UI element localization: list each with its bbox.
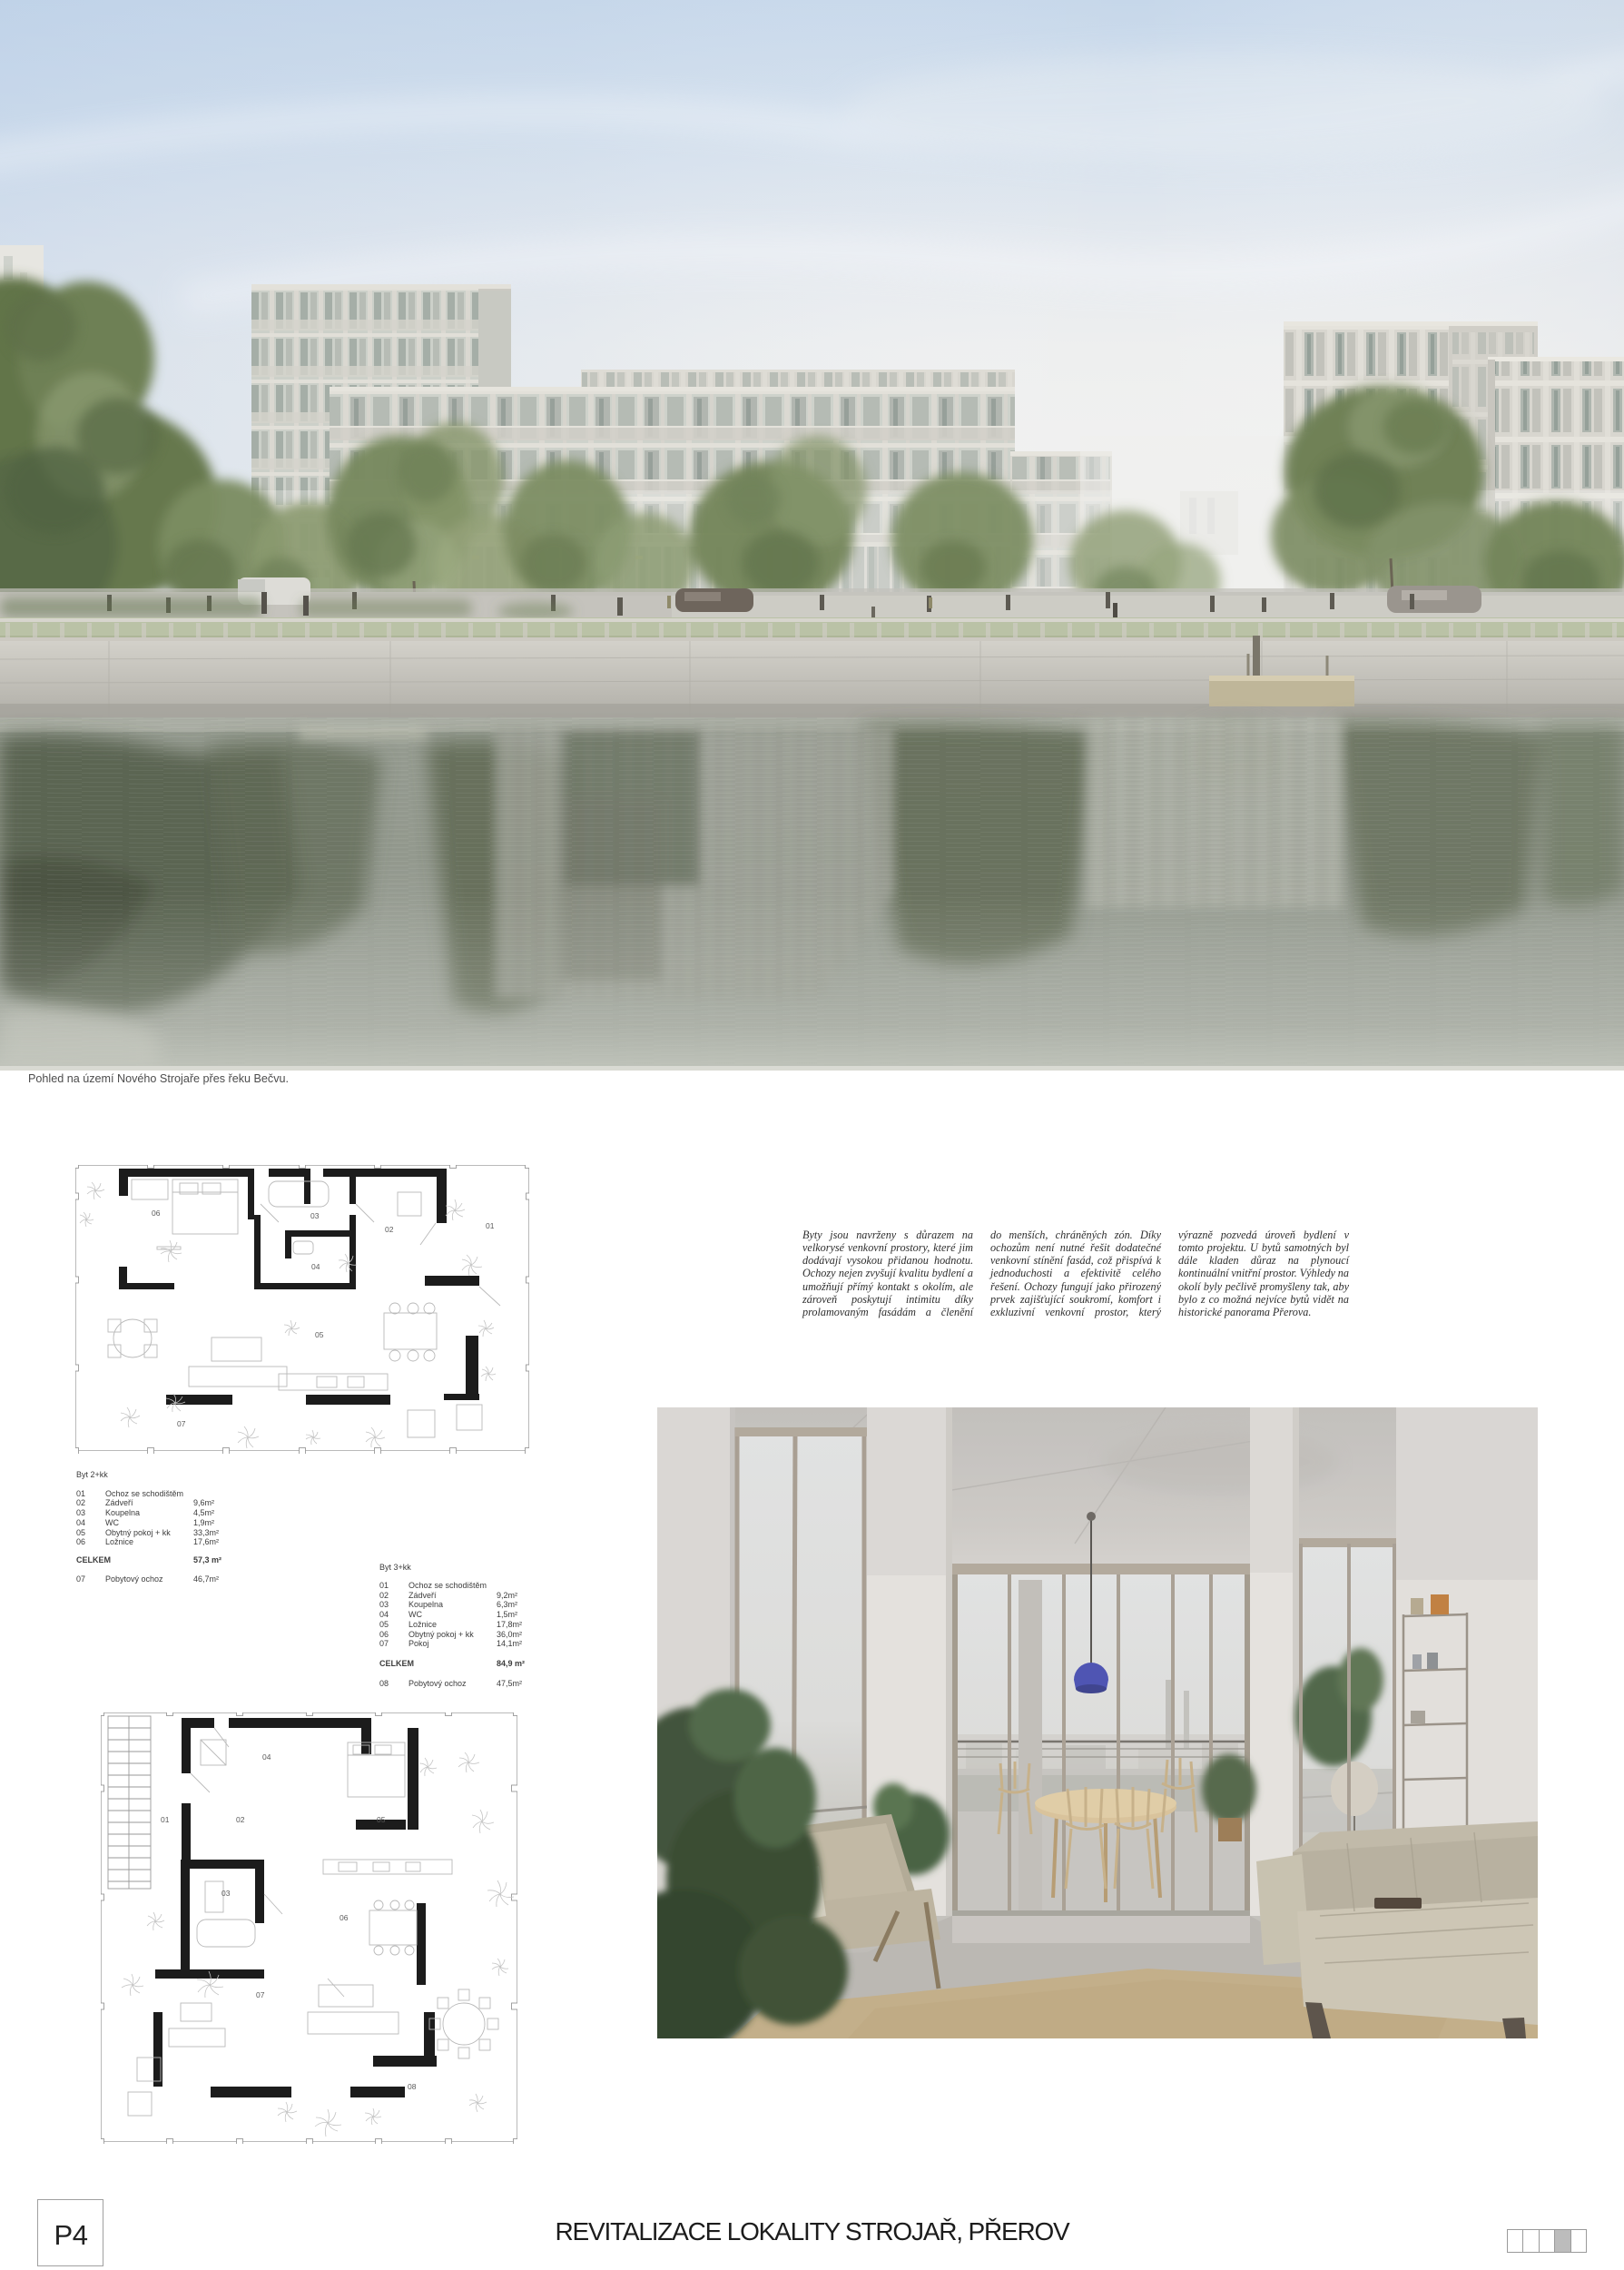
svg-text:03: 03: [221, 1889, 231, 1898]
svg-text:08: 08: [408, 2082, 417, 2091]
svg-text:03: 03: [310, 1211, 320, 1220]
svg-text:01: 01: [161, 1815, 170, 1824]
svg-text:07: 07: [256, 1990, 265, 1999]
svg-text:06: 06: [340, 1913, 349, 1922]
svg-text:07: 07: [177, 1419, 186, 1428]
svg-text:02: 02: [236, 1815, 245, 1824]
svg-text:04: 04: [262, 1752, 271, 1762]
svg-text:05: 05: [315, 1330, 324, 1339]
svg-text:01: 01: [486, 1221, 495, 1230]
svg-text:02: 02: [385, 1225, 394, 1234]
svg-text:06: 06: [152, 1209, 161, 1218]
svg-text:05: 05: [377, 1815, 386, 1824]
svg-text:04: 04: [311, 1262, 320, 1271]
